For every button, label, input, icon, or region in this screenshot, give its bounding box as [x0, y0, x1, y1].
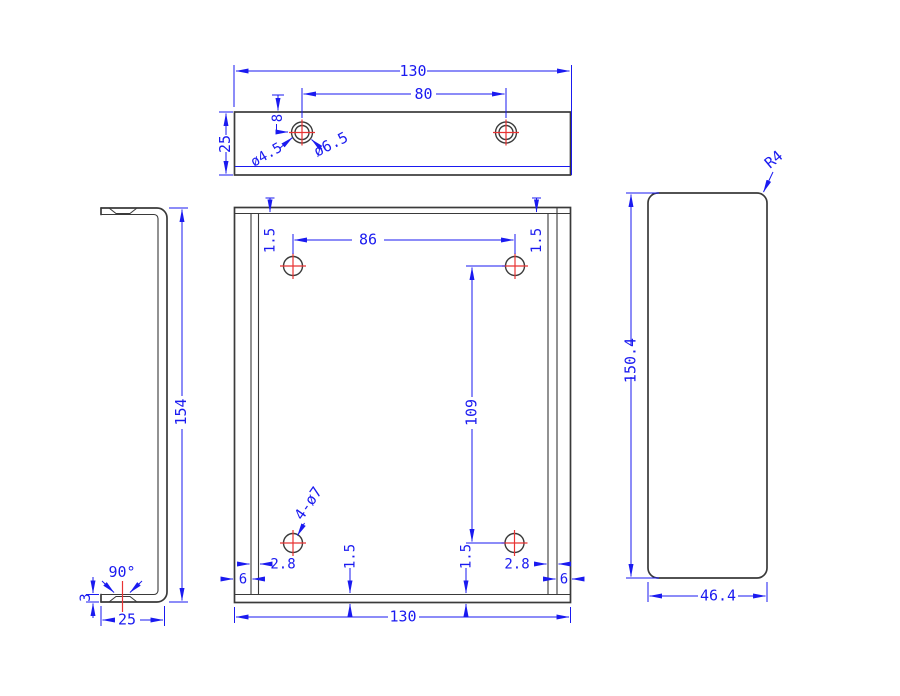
leader-line	[764, 172, 774, 192]
dim-top-hole-offset: 8	[270, 95, 288, 132]
leader-line	[280, 138, 293, 149]
dim-text: 25	[216, 135, 234, 153]
dim-inset-left: 2.8	[240, 557, 296, 573]
cad-drawing-sheet: 130 80 25 8 ø4.5	[0, 0, 900, 696]
drawing-svg: 130 80 25 8 ø4.5	[0, 0, 900, 696]
dim-thickness: 3	[78, 577, 99, 618]
leader-line	[298, 523, 305, 536]
countersunk-hole-left	[289, 120, 315, 146]
front-view: 86 109 4-ø7 1.5 1.5	[221, 198, 584, 626]
dim-text: 3	[78, 593, 94, 601]
dim-text: 6	[560, 572, 568, 588]
dim-edge-right: 6	[543, 572, 584, 588]
dim-bend-top-right: 1.5	[529, 198, 545, 253]
mounting-hole-top-left	[280, 253, 306, 279]
mounting-hole-top-right	[502, 253, 528, 279]
dim-text: 150.4	[622, 338, 640, 383]
dim-text: 90°	[108, 563, 135, 581]
dim-text: 2.8	[504, 557, 529, 573]
dim-profile-width: 46.4	[648, 582, 767, 605]
dim-top-hole-spacing: 80	[302, 85, 506, 118]
callout-hole-outer: ø6.5	[311, 128, 351, 160]
countersunk-hole-right	[493, 120, 519, 146]
callout-text: ø4.5	[248, 140, 285, 171]
profile-outline	[648, 193, 767, 578]
dim-text: 6	[239, 572, 247, 588]
callout-text: 4-ø7	[291, 483, 326, 523]
dim-flange-depth: 25	[101, 606, 165, 629]
profile-view: 150.4 46.4 R4	[622, 147, 787, 605]
side-view-outer-profile	[101, 208, 167, 602]
dim-text: 1.5	[263, 228, 279, 253]
dim-text: 1.5	[459, 544, 475, 569]
dim-text: 2.8	[270, 557, 295, 573]
callout-corner-radius: R4	[761, 147, 786, 192]
dim-text: 8	[270, 114, 286, 122]
dim-text: 46.4	[700, 587, 736, 605]
dim-bend-top-left: 1.5	[263, 198, 279, 253]
dim-bend-bottom-right: 1.5	[459, 544, 475, 614]
dim-text: 130	[399, 62, 426, 80]
side-view: 90° 3 25 154	[78, 208, 190, 629]
mounting-hole-bottom-right	[502, 530, 528, 556]
top-view: 130 80 25 8 ø4.5	[216, 62, 572, 175]
dim-edge-left: 6	[221, 572, 264, 588]
dim-text: 1.5	[343, 544, 359, 569]
dim-side-height: 154	[169, 208, 190, 602]
dim-text: 80	[414, 85, 432, 103]
callout-text: R4	[761, 147, 786, 172]
dim-profile-height: 150.4	[622, 193, 660, 578]
dim-hole-span-y: 109	[463, 266, 506, 543]
dim-text: 25	[118, 611, 136, 629]
dim-text: 109	[463, 399, 481, 426]
dim-front-width: 130	[235, 607, 571, 626]
callout-mounting-holes: 4-ø7	[291, 483, 326, 535]
dim-text: 86	[359, 231, 377, 249]
dim-bend-bottom-left: 1.5	[343, 544, 359, 614]
callout-text: ø6.5	[311, 128, 351, 160]
mounting-hole-bottom-left	[280, 530, 306, 556]
dim-text: 1.5	[529, 228, 545, 253]
side-view-inner-profile	[101, 215, 158, 595]
dim-text: 154	[172, 398, 190, 425]
angle-arrow	[130, 581, 142, 593]
dim-text: 130	[389, 608, 416, 626]
dim-hole-span-x: 86	[293, 231, 515, 255]
callout-hole-inner: ø4.5	[248, 138, 293, 171]
angle-arrow	[102, 581, 114, 593]
dim-top-depth: 25	[216, 112, 234, 175]
